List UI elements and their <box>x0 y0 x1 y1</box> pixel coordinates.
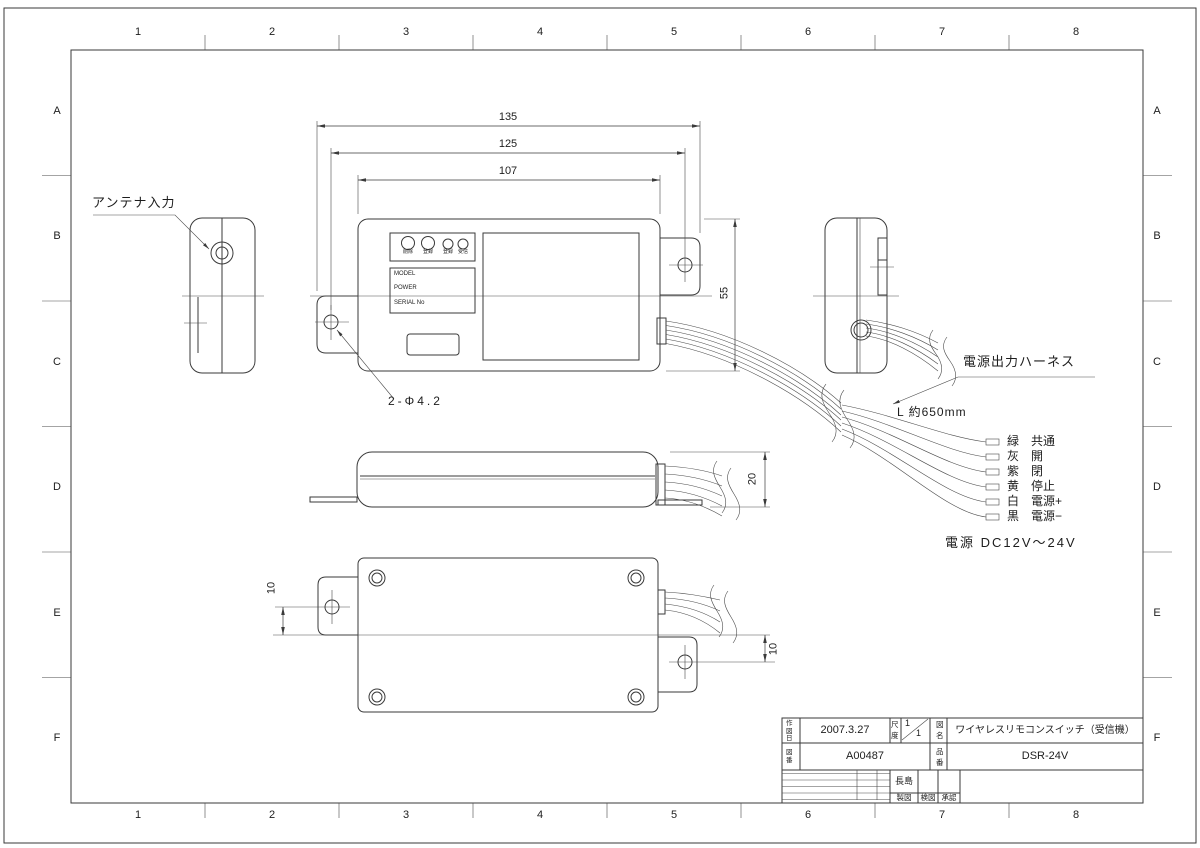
titleblock-partno-label: 品番 <box>936 746 944 768</box>
titleblock-drafter: 長島 <box>895 777 913 786</box>
grid-col-label: 5 <box>671 27 677 38</box>
nameplate-model: MODEL <box>394 271 415 277</box>
wire-label-purple: 紫閉 <box>1007 465 1043 477</box>
grid-col-label: 7 <box>939 810 945 821</box>
titleblock-scale-denominator: 1 <box>916 729 921 738</box>
grid-col-label: 3 <box>403 810 409 821</box>
drawing-canvas <box>0 0 1200 848</box>
bottom-view <box>273 558 775 712</box>
grid-row-label: A <box>1153 106 1160 117</box>
grid-col-label: 2 <box>269 810 275 821</box>
titleblock-sign-check: 検図 <box>921 794 936 802</box>
titleblock-drawing-name: ワイヤレスリモコンスイッチ（受信機） <box>955 726 1135 736</box>
grid-row-label: F <box>54 733 61 744</box>
dim-width-holes: 125 <box>499 139 517 150</box>
nameplate-serial: SERIAL No <box>394 300 424 306</box>
grid-col-label: 3 <box>403 27 409 38</box>
titleblock-date: 2007.3.27 <box>821 725 870 736</box>
grid-row-label: E <box>53 608 60 619</box>
grid-col-label: 8 <box>1073 27 1079 38</box>
grid-col-label: 5 <box>671 810 677 821</box>
grid-col-label: 4 <box>537 27 543 38</box>
wire-label-yellow: 黄停止 <box>1007 480 1055 492</box>
titleblock-sign-draft: 製図 <box>897 794 912 802</box>
front-view-dimensions <box>317 121 740 399</box>
wire-label-white: 白電源+ <box>1007 495 1062 507</box>
titleblock-date-label: 作図日 <box>786 720 794 743</box>
panel-button-label: 受信 <box>458 250 468 255</box>
grid-col-label: 2 <box>269 27 275 38</box>
wire-label-black: 黒電源− <box>1007 510 1062 522</box>
harness-label: 電源出力ハーネス <box>963 355 1075 368</box>
harness-length-label: L 約650mm <box>897 406 967 418</box>
hole-note-label: 2-Φ4.2 <box>388 395 443 407</box>
titleblock-dwgno: A00487 <box>846 751 884 762</box>
grid-col-label: 4 <box>537 810 543 821</box>
grid-row-label: C <box>53 357 61 368</box>
nameplate-power: POWER <box>394 285 417 291</box>
titleblock-scale-numerator: 1 <box>905 719 910 728</box>
left-side-view <box>93 215 264 373</box>
titleblock-dwgno-label: 図番 <box>786 749 794 765</box>
power-note-label: 電源 DC12V～24V <box>945 536 1077 549</box>
grid-row-label: A <box>53 106 60 117</box>
panel-button-label: 登録 <box>443 250 453 255</box>
grid-row-label: E <box>1153 608 1160 619</box>
grid-col-label: 6 <box>805 27 811 38</box>
titleblock-sign-approve: 承認 <box>942 794 957 802</box>
antenna-input-label: アンテナ入力 <box>92 196 175 209</box>
dim-hole-offset-right: 10 <box>769 643 780 655</box>
dim-thickness: 20 <box>748 473 759 485</box>
grid-col-label: 8 <box>1073 810 1079 821</box>
dim-width-overall: 135 <box>499 112 517 123</box>
dim-height-body: 55 <box>720 287 731 299</box>
side-profile-view <box>310 452 770 520</box>
grid-row-label: C <box>1153 357 1161 368</box>
grid-row-label: F <box>1154 733 1161 744</box>
grid-row-label: B <box>53 231 60 242</box>
titleblock-scale-label: 尺度 <box>891 719 899 741</box>
grid-row-label: D <box>53 482 61 493</box>
titleblock-partno: DSR-24V <box>1022 751 1068 762</box>
right-side-view <box>813 218 956 386</box>
grid-col-label: 7 <box>939 27 945 38</box>
grid-col-label: 1 <box>135 810 141 821</box>
grid-row-label: B <box>1153 231 1160 242</box>
dim-hole-offset-left: 10 <box>267 582 278 594</box>
drawing-sheet: { "drawing": { "grid": { "cols": ["1","2… <box>0 0 1200 848</box>
grid-row-label: D <box>1153 482 1161 493</box>
wire-label-green: 緑共通 <box>1007 435 1055 447</box>
titleblock-name-label: 図名 <box>936 719 944 741</box>
panel-button-label: 削除 <box>403 250 413 255</box>
panel-button-label: 登録 <box>423 250 433 255</box>
wire-label-gray: 灰開 <box>1007 450 1043 462</box>
grid-col-label: 6 <box>805 810 811 821</box>
grid-col-label: 1 <box>135 27 141 38</box>
front-view <box>310 219 712 371</box>
dim-width-body: 107 <box>499 166 517 177</box>
